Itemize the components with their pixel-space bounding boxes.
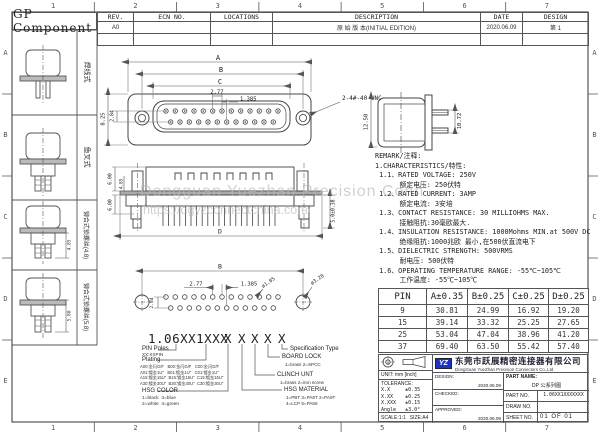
part-number-x2: X xyxy=(238,331,246,346)
sheet-title: GP Component xyxy=(12,12,97,30)
front-view xyxy=(128,94,311,145)
left-view-rivet-58 xyxy=(20,273,69,338)
company-logo: YZ xyxy=(435,358,452,369)
remark-notes: REMARK/注释:1.CHARACTERISTICS/特性: 1.1、RATE… xyxy=(375,152,588,286)
company-name-cn: 东莞市跃展精密连接器有限公司 xyxy=(455,355,581,367)
part-no-label: PART NO. xyxy=(504,391,538,401)
approved-value: 2020.06.09 xyxy=(435,416,501,421)
left-view-solder xyxy=(20,45,66,103)
company-name-en: DongGuan YueZhan Precision Connectors Co… xyxy=(455,367,581,372)
locations-header: LOCATIONS xyxy=(211,13,273,22)
part-number-x3: X xyxy=(251,331,259,346)
bottom-dim-row-gap: 2.84 xyxy=(149,297,155,308)
bottom-dim-width: B xyxy=(218,263,222,271)
side-dim-pin-height: 10.72 xyxy=(457,113,463,130)
bottom-view-holes-row2 xyxy=(168,306,275,311)
mid-view xyxy=(120,163,322,232)
plating-codes: A00:金闪G/F B00:金闪G/F C00:金闪G/F A01:镀金1U" … xyxy=(140,364,223,386)
front-view-pins-row1 xyxy=(164,109,280,113)
front-view-pins-row2 xyxy=(169,120,276,124)
mid-dim-bottom: 6.00 xyxy=(108,199,114,211)
ecn-header: ECN NO. xyxy=(134,13,211,22)
mid-dim-right: 5.0±0.38 xyxy=(331,199,337,222)
draw-no-cell: DRAW NO. xyxy=(504,402,589,413)
part-no-value: 1.06XX1XXXXXXX xyxy=(538,391,589,401)
board-lock-label: BOARD LOCK xyxy=(282,354,321,360)
side-view-dimensions xyxy=(368,98,459,147)
design-cell: DESIGN: 2020.06.09 xyxy=(433,373,504,390)
zone-numbers-top: 12 34 56 7 xyxy=(12,0,588,11)
left-view-rivet-48 xyxy=(20,201,69,264)
hsg-color-items: 1=black 3=blue 2=white 4=green xyxy=(142,396,179,408)
front-dim-row-gap: 2.84 xyxy=(110,110,116,122)
tolerance-values: X.X ±0.35 X.XX ±0.25 X.XXX ±0.15 Angle ±… xyxy=(381,387,430,413)
pin-table-header: PIN A±0.35 B±0.25 C±0.25 D±0.25 xyxy=(379,289,589,305)
revision-row-empty xyxy=(98,34,589,46)
left-dim-48: 4.85 xyxy=(67,239,73,250)
left-dim-58: 5.80 xyxy=(67,310,73,321)
bottom-view-holes-row1 xyxy=(164,295,281,300)
front-dim-pitch: 2.77 xyxy=(210,90,223,96)
bottom-hole-small-label: ø1.05 xyxy=(261,276,277,290)
plating-label: Plating xyxy=(142,357,160,363)
left-view-harpoon xyxy=(20,128,66,196)
table-row: 930.81 24.9916.92 19.20 xyxy=(379,305,589,317)
revision-table: REV. ECN NO. LOCATIONS DESCRIPTION DATE … xyxy=(97,12,589,46)
checked-label: CHECKED: xyxy=(435,391,459,396)
approved-cell: APPROVED: 2020.06.09 xyxy=(433,406,504,423)
mid-dim-width: D xyxy=(218,228,222,236)
clinch-unt-label: CLINCH UNT xyxy=(277,372,313,378)
hsg-material-items: 1=PBT 3=PA9T 2=PA9T 4=LCP 5=PA66 xyxy=(286,395,335,407)
part-number-x4: X xyxy=(264,331,272,346)
zone-letters-right: AB CD E xyxy=(589,12,600,422)
mid-view-dimensions xyxy=(112,167,335,240)
part-name-cell: PART NAME: DP 公系列图 xyxy=(504,373,589,391)
part-number-base: 1.06XX1XXX xyxy=(148,331,228,346)
table-row: 3769.40 63.5055.42 57.40 xyxy=(379,341,589,353)
spec-type-label: Specification Type xyxy=(290,346,339,352)
bottom-dim-half-pitch: 1.385 xyxy=(241,282,258,288)
mid-dim-mid: 4.85 xyxy=(119,178,125,189)
board-lock-items: 1=brass 2=SPCC xyxy=(285,362,321,367)
clinch-unt-items: 1=brass 2=iron screw xyxy=(280,380,324,385)
table-row: 2553.04 47.0438.96 41.20 xyxy=(379,329,589,341)
design-label: DESIGN: xyxy=(435,374,454,379)
side-dim-height: 12.50 xyxy=(364,114,370,131)
part-number-x5: X xyxy=(278,331,286,346)
table-row: 1539.14 33.3225.25 27.65 xyxy=(379,317,589,329)
projection-symbol-cell xyxy=(379,355,433,371)
left-view-label-1: 焊线式 xyxy=(81,30,93,114)
design-value: 2020.06.09 xyxy=(435,383,501,388)
side-view xyxy=(378,92,448,153)
approved-label: APPROVED: xyxy=(435,407,462,412)
unit-cell: UNIT: mm [inch] xyxy=(379,371,433,380)
engineering-drawing-sheet: { "sheet": { "title": "GP Component", "w… xyxy=(0,0,600,433)
checked-cell: CHECKED: xyxy=(433,390,504,406)
sheet-no-label: SHEET NO. xyxy=(504,413,538,423)
part-number-x1: X xyxy=(224,331,232,346)
tolerance-cell: TOLERANCE: X.X ±0.35 X.XX ±0.25 X.XXX ±0… xyxy=(379,380,433,413)
mid-dim-top: 6.00 xyxy=(108,173,114,185)
left-view-label-4: 铆合式锁螺丝(5.8) xyxy=(81,265,93,349)
zone-numbers-bottom: 12 34 56 7 xyxy=(12,422,588,433)
front-dim-c: C xyxy=(218,78,222,86)
design-header: DESIGN xyxy=(523,13,589,22)
part-no-cell: PART NO. 1.06XX1XXXXXXX xyxy=(504,391,589,402)
sheet-no-cell: SHEET NO. 01 OF 01 xyxy=(504,413,589,423)
front-dim-a: A xyxy=(216,54,221,62)
draw-no-label: DRAW NO. xyxy=(504,402,538,412)
hsg-color-label: HSG COLOR xyxy=(142,388,178,394)
bottom-dim-pitch: 2.77 xyxy=(189,282,202,288)
bottom-view-dimensions xyxy=(142,268,312,308)
bottom-hole-big-label: ø3.20 xyxy=(310,273,326,287)
rev-header: REV. xyxy=(98,13,134,22)
company-cell: YZ 东莞市跃展精密连接器有限公司 DongGuan YueZhan Preci… xyxy=(433,355,589,373)
part-name-value: DP 公系列图 xyxy=(506,382,587,389)
pin-dimension-table: PIN A±0.35 B±0.25 C±0.25 D±0.25 930.81 2… xyxy=(378,288,589,353)
front-thread-label: 2-4#-40 UNC xyxy=(342,95,382,102)
sheet-no-value: 01 OF 01 xyxy=(538,413,589,423)
left-view-label-2: 鱼叉式 xyxy=(81,115,93,199)
scale-cell: SCALE:1:1 SIZE:A4 xyxy=(379,413,433,423)
zone-letters-left: AB CD E xyxy=(0,12,11,422)
front-dim-b: B xyxy=(219,66,223,74)
size-label: SIZE:A4 xyxy=(410,415,429,421)
draw-no-value xyxy=(538,402,589,412)
part-name-label: PART NAME: xyxy=(506,374,537,380)
title-block: UNIT: mm [inch] TOLERANCE: X.X ±0.35 X.X… xyxy=(378,354,588,422)
description-header: DESCRIPTION xyxy=(273,13,481,22)
scale-label: SCALE:1:1 xyxy=(381,415,406,421)
third-angle-projection-icon xyxy=(379,355,431,369)
hsg-material-label: HSG MATERIAL xyxy=(284,387,328,393)
revision-row: A0 原 始 版 本(INITIAL EDITION) 2020.06.09 第… xyxy=(98,22,589,34)
front-dim-row-height: 8.25 xyxy=(101,112,107,125)
front-dim-half-pitch: 1.385 xyxy=(240,97,257,103)
date-header: DATE xyxy=(481,13,523,22)
